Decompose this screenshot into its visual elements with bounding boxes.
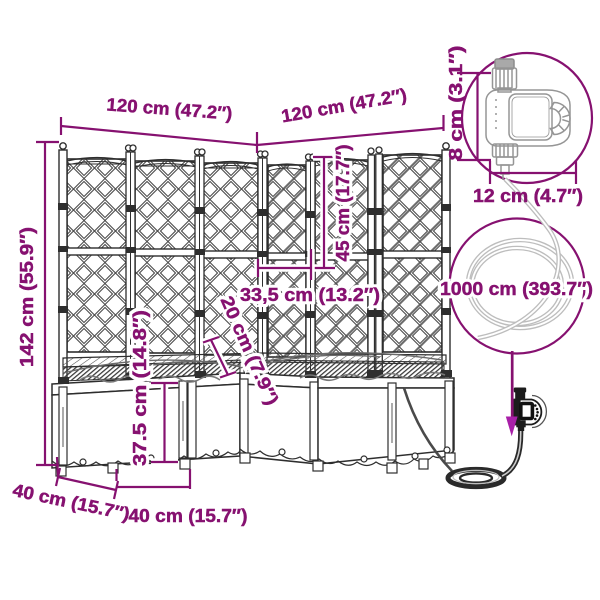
svg-text:1000 cm (393.7″): 1000 cm (393.7″) [440, 279, 593, 299]
svg-text:37.5 cm (14.8″): 37.5 cm (14.8″) [130, 310, 150, 466]
svg-text:45 cm (17.7″): 45 cm (17.7″) [333, 144, 353, 261]
svg-text:40 cm (15.7″): 40 cm (15.7″) [11, 480, 132, 524]
svg-text:33,5 cm (13.2″): 33,5 cm (13.2″) [240, 285, 380, 305]
svg-text:12 cm (4.7″): 12 cm (4.7″) [473, 186, 583, 206]
svg-text:40 cm (15.7″): 40 cm (15.7″) [129, 506, 248, 526]
svg-text:8 cm (3.1″): 8 cm (3.1″) [446, 46, 466, 161]
svg-text:120 cm (47.2″): 120 cm (47.2″) [106, 94, 233, 123]
svg-text:142 cm (55.9″): 142 cm (55.9″) [17, 227, 37, 367]
svg-text:120 cm (47.2″): 120 cm (47.2″) [280, 85, 409, 127]
